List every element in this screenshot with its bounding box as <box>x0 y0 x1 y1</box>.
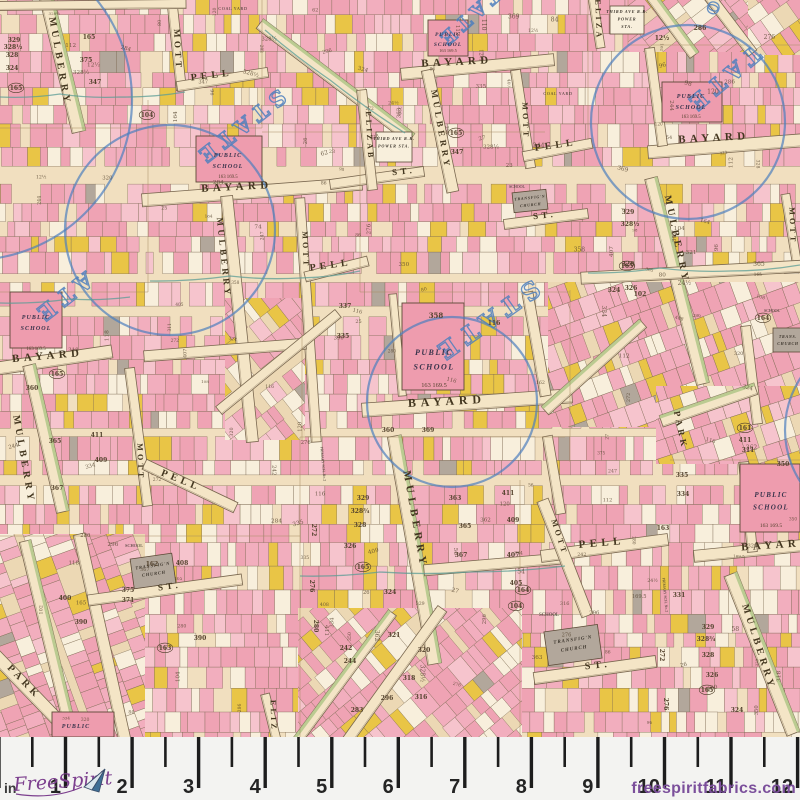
map-lot <box>613 590 625 614</box>
map-lot <box>191 374 208 394</box>
map-lot <box>87 252 104 274</box>
map-lot <box>0 461 4 475</box>
map-lot <box>334 374 348 394</box>
map-lot <box>76 374 87 394</box>
map-lot <box>504 374 515 394</box>
map-lot <box>487 15 502 34</box>
map-lot <box>429 486 444 505</box>
map-lot <box>648 688 657 712</box>
map-lot <box>145 283 159 307</box>
map-lot <box>297 105 308 124</box>
map-lot <box>192 688 200 712</box>
map-lot <box>471 88 479 105</box>
map-lot <box>217 590 227 614</box>
map-lot <box>542 237 555 253</box>
map-lot <box>450 252 463 274</box>
map-lot <box>32 204 48 222</box>
map-lot <box>324 105 340 124</box>
map-lot <box>143 712 158 732</box>
map-lot <box>582 688 600 712</box>
map-lot <box>276 252 293 274</box>
map-lot <box>759 237 767 253</box>
map-lot <box>642 633 655 647</box>
map-lot <box>332 0 350 15</box>
map-lot <box>284 566 293 590</box>
map-lot <box>606 712 622 732</box>
map-lot <box>793 88 800 105</box>
map-lot <box>629 688 638 712</box>
map-lot <box>70 437 78 461</box>
map-lot <box>709 184 725 204</box>
map-lot <box>358 360 370 375</box>
map-lot <box>567 73 585 88</box>
map-lot <box>661 667 675 688</box>
map-lot <box>428 524 440 542</box>
map-lot <box>442 88 453 105</box>
map-lot <box>536 73 547 88</box>
map-lot <box>319 0 332 15</box>
map-lot <box>239 34 248 52</box>
map-lot <box>260 461 271 475</box>
map-lot <box>159 283 172 307</box>
map-lot <box>770 204 784 222</box>
map-lot <box>347 411 358 428</box>
map-lot <box>765 712 774 732</box>
map-lot <box>388 51 401 72</box>
map-lot <box>324 374 333 394</box>
map-lot <box>31 237 38 253</box>
map-lot <box>633 614 647 633</box>
map-lot <box>194 360 201 375</box>
map-lot <box>78 317 94 336</box>
map-lot <box>638 688 648 712</box>
map-lot <box>693 486 710 505</box>
map-lot <box>429 505 442 525</box>
map-lot <box>578 88 585 105</box>
map-lot <box>71 237 89 253</box>
map-lot <box>529 73 536 88</box>
map-lot <box>412 0 420 15</box>
map-lot <box>623 147 640 166</box>
map-lot <box>751 222 760 237</box>
map-lot <box>151 486 163 505</box>
map-lot <box>10 124 20 147</box>
map-lot <box>555 184 566 204</box>
map-lot <box>680 524 696 542</box>
map-lot <box>196 0 210 15</box>
map-lot <box>200 237 214 253</box>
map-lot <box>159 411 167 428</box>
map-lot <box>374 51 388 72</box>
map-lot <box>251 505 261 525</box>
map-lot <box>252 252 267 274</box>
map-lot <box>414 437 424 461</box>
map-lot <box>521 252 538 274</box>
map-lot <box>109 411 119 428</box>
map-lot <box>1 147 12 166</box>
map-lot <box>712 566 721 590</box>
map-lot <box>578 252 586 274</box>
map-lot <box>456 237 467 253</box>
map-lot <box>343 147 354 166</box>
map-lot <box>464 283 481 307</box>
map-lot <box>411 204 419 222</box>
map-lot <box>340 461 353 475</box>
map-lot <box>0 486 5 505</box>
map-lot <box>70 147 83 166</box>
map-lot <box>113 105 127 124</box>
map-lot <box>280 73 296 88</box>
map-lot <box>269 543 278 567</box>
map-lot <box>143 411 151 428</box>
map-lot <box>95 374 109 394</box>
map-lot <box>89 237 101 253</box>
map-lot <box>392 222 404 237</box>
map-lot <box>440 524 457 542</box>
map-lot <box>640 486 653 505</box>
map-lot <box>598 204 611 222</box>
map-lot <box>413 34 426 52</box>
map-lot <box>473 437 482 461</box>
map-lot <box>172 437 181 461</box>
map-lot <box>344 360 358 375</box>
map-lot <box>768 614 781 633</box>
map-lot <box>184 461 196 475</box>
map-lot <box>220 88 234 105</box>
map-lot <box>489 204 502 222</box>
map-lot <box>301 524 309 542</box>
map-lot <box>531 633 541 647</box>
map-lot <box>675 667 684 688</box>
map-lot <box>268 124 282 147</box>
map-lot <box>107 283 120 307</box>
map-lot <box>245 633 259 647</box>
map-lot <box>396 184 408 204</box>
map-lot <box>459 505 477 525</box>
map-lot <box>188 712 205 732</box>
map-lot <box>30 124 46 147</box>
map-lot <box>339 105 356 124</box>
map-lot <box>267 222 278 237</box>
map-lot <box>519 461 526 475</box>
map-lot <box>457 461 464 475</box>
map-lot <box>178 394 193 411</box>
map-lot <box>442 505 458 525</box>
map-lot <box>350 0 358 15</box>
map-lot <box>216 34 226 52</box>
map-lot <box>170 505 179 525</box>
map-lot <box>0 437 6 461</box>
map-lot <box>259 633 268 647</box>
map-lot <box>89 486 96 505</box>
map-lot <box>240 712 251 732</box>
map-lot <box>326 15 335 34</box>
map-lot <box>557 222 571 237</box>
map-lot <box>749 566 763 590</box>
map-lot <box>531 524 545 542</box>
map-lot <box>357 34 366 52</box>
map-lot <box>711 222 719 237</box>
map-lot <box>713 524 730 542</box>
map-lot <box>558 15 565 34</box>
map-lot <box>130 505 142 525</box>
map-lot <box>217 524 229 542</box>
map-lot <box>95 105 113 124</box>
map-lot <box>164 486 178 505</box>
map-lot <box>390 543 399 567</box>
map-lot <box>181 712 188 732</box>
map-lot <box>434 0 445 15</box>
map-lot <box>179 505 196 525</box>
map-lot <box>112 486 123 505</box>
map-lot <box>110 437 117 461</box>
map-lot <box>389 73 400 88</box>
map-lot <box>231 461 246 475</box>
map-lot <box>710 486 723 505</box>
map-lot <box>226 614 242 633</box>
map-lot <box>193 394 207 411</box>
map-lot <box>178 204 193 222</box>
map-lot <box>697 237 707 253</box>
map-lot <box>189 283 205 307</box>
map-lot <box>0 204 5 222</box>
map-lot <box>490 336 504 360</box>
map-lot <box>655 614 671 633</box>
map-lot <box>468 486 484 505</box>
map-lot <box>577 505 593 525</box>
map-lot <box>509 360 527 375</box>
map-lot <box>554 712 567 732</box>
map-lot <box>678 51 687 72</box>
map-lot <box>464 411 473 428</box>
map-lot <box>136 283 144 307</box>
map-lot <box>203 461 215 475</box>
map-lot <box>0 237 6 253</box>
map-lot <box>600 688 613 712</box>
map-lot <box>425 184 433 204</box>
map-lot <box>301 147 317 166</box>
map-lot <box>36 505 45 525</box>
map-lot <box>364 73 375 88</box>
map-lot <box>317 15 326 34</box>
map-lot <box>117 505 130 525</box>
map-lot <box>302 88 316 105</box>
map-lot <box>174 252 189 274</box>
map-lot <box>86 184 95 204</box>
map-lot <box>159 222 177 237</box>
map-lot <box>104 252 111 274</box>
map-lot <box>250 712 259 732</box>
map-lot <box>12 147 27 166</box>
fabric-swatch-photo: TATESTATETATEOSTATEATEMULBERRYMOTTPELLBA… <box>0 0 800 800</box>
map-lot <box>418 124 426 147</box>
map-lot <box>418 237 428 253</box>
map-lot <box>283 647 296 667</box>
map-lot <box>345 51 355 72</box>
map-lot <box>6 237 19 253</box>
map-lot <box>519 34 535 52</box>
map-lot <box>86 222 102 237</box>
map-lot <box>311 543 321 567</box>
map-lot <box>1 184 12 204</box>
map-lot <box>294 486 310 505</box>
map-lot <box>423 147 438 166</box>
map-lot <box>92 411 109 428</box>
map-lot <box>612 688 629 712</box>
map-lot <box>612 147 623 166</box>
map-lot <box>151 411 159 428</box>
map-lot <box>69 15 80 34</box>
map-lot <box>305 15 317 34</box>
map-lot <box>486 461 494 475</box>
map-lot <box>398 204 410 222</box>
map-lot <box>311 222 326 237</box>
map-lot <box>745 105 758 124</box>
map-lot <box>277 147 286 166</box>
map-lot <box>523 0 532 15</box>
map-lot <box>119 222 127 237</box>
map-lot <box>732 237 744 253</box>
map-lot <box>324 204 331 222</box>
map-lot <box>227 590 238 614</box>
map-lot <box>783 88 793 105</box>
map-lot <box>770 184 779 204</box>
map-lot <box>194 543 207 567</box>
map-lot <box>99 360 109 375</box>
map-lot <box>487 73 502 88</box>
map-lot <box>164 73 175 88</box>
map-lot <box>339 237 357 253</box>
map-lot <box>330 360 343 375</box>
map-lot <box>286 15 293 34</box>
map-lot <box>412 147 423 166</box>
map-lot <box>0 252 3 274</box>
map-lot <box>404 222 417 237</box>
map-lot <box>577 184 591 204</box>
map-lot <box>581 486 592 505</box>
map-lot <box>221 543 228 567</box>
map-lot <box>107 394 123 411</box>
map-lot <box>48 147 61 166</box>
map-lot <box>428 237 442 253</box>
map-lot <box>594 237 607 253</box>
map-lot <box>515 374 529 394</box>
map-lot <box>567 51 582 72</box>
map-lot <box>618 566 632 590</box>
map-lot <box>415 105 422 124</box>
map-lot <box>215 461 231 475</box>
map-lot <box>283 237 297 253</box>
map-lot <box>100 51 117 72</box>
map-lot <box>614 88 630 105</box>
map-lot <box>275 590 291 614</box>
map-lot <box>244 204 258 222</box>
map-lot <box>777 647 788 667</box>
map-lot <box>557 51 567 72</box>
map-lot <box>250 524 264 542</box>
map-lot <box>152 73 164 88</box>
map-lot <box>373 461 386 475</box>
map-lot <box>620 124 634 147</box>
map-lot <box>4 461 17 475</box>
map-lot <box>591 486 601 505</box>
map-lot <box>623 51 639 72</box>
map-lot <box>247 566 257 590</box>
map-lot <box>207 394 215 411</box>
map-lot <box>319 566 336 590</box>
map-lot <box>727 712 745 732</box>
map-lot <box>767 633 781 647</box>
map-lot <box>498 34 508 52</box>
map-lot <box>746 204 762 222</box>
map-lot <box>502 461 519 475</box>
map-lot <box>62 437 70 461</box>
map-lot <box>263 590 275 614</box>
map-lot <box>691 184 709 204</box>
map-lot <box>383 184 396 204</box>
map-lot <box>608 124 620 147</box>
map-lot <box>479 105 493 124</box>
map-lot <box>554 252 566 274</box>
map-lot <box>667 633 674 647</box>
map-lot <box>364 15 375 34</box>
map-lot <box>609 566 618 590</box>
map-lot <box>5 486 20 505</box>
map-lot <box>369 317 386 336</box>
map-lot <box>691 667 702 688</box>
map-lot <box>652 590 660 614</box>
map-lot <box>767 237 776 253</box>
map-lot <box>55 237 72 253</box>
map-lot <box>237 647 255 667</box>
map-lot <box>684 633 696 647</box>
map-lot <box>332 124 349 147</box>
map-lot <box>8 222 15 237</box>
map-lot <box>426 411 444 428</box>
map-lot <box>132 336 144 360</box>
map-lot <box>487 411 502 428</box>
map-lot <box>0 105 12 124</box>
map-lot <box>533 590 545 614</box>
map-lot <box>417 252 429 274</box>
map-lot <box>491 184 506 204</box>
map-lot <box>167 688 176 712</box>
map-lot <box>274 204 292 222</box>
map-lot <box>634 73 642 88</box>
map-lot <box>201 360 216 375</box>
map-lot <box>203 505 212 525</box>
map-lot <box>88 360 99 375</box>
map-lot <box>616 437 625 461</box>
map-lot <box>329 394 346 411</box>
map-lot <box>165 374 179 394</box>
map-lot <box>365 34 376 52</box>
map-lot <box>395 566 407 590</box>
map-lot <box>293 0 308 15</box>
map-lot <box>463 105 479 124</box>
map-lot <box>249 15 259 34</box>
map-lot <box>393 34 403 52</box>
map-lot <box>433 204 444 222</box>
map-lot <box>216 633 231 647</box>
map-lot <box>215 437 233 461</box>
map-lot <box>189 252 203 274</box>
map-lot <box>467 184 481 204</box>
map-lot <box>624 505 642 525</box>
map-lot <box>486 222 497 237</box>
map-lot <box>203 614 215 633</box>
map-lot <box>419 204 433 222</box>
